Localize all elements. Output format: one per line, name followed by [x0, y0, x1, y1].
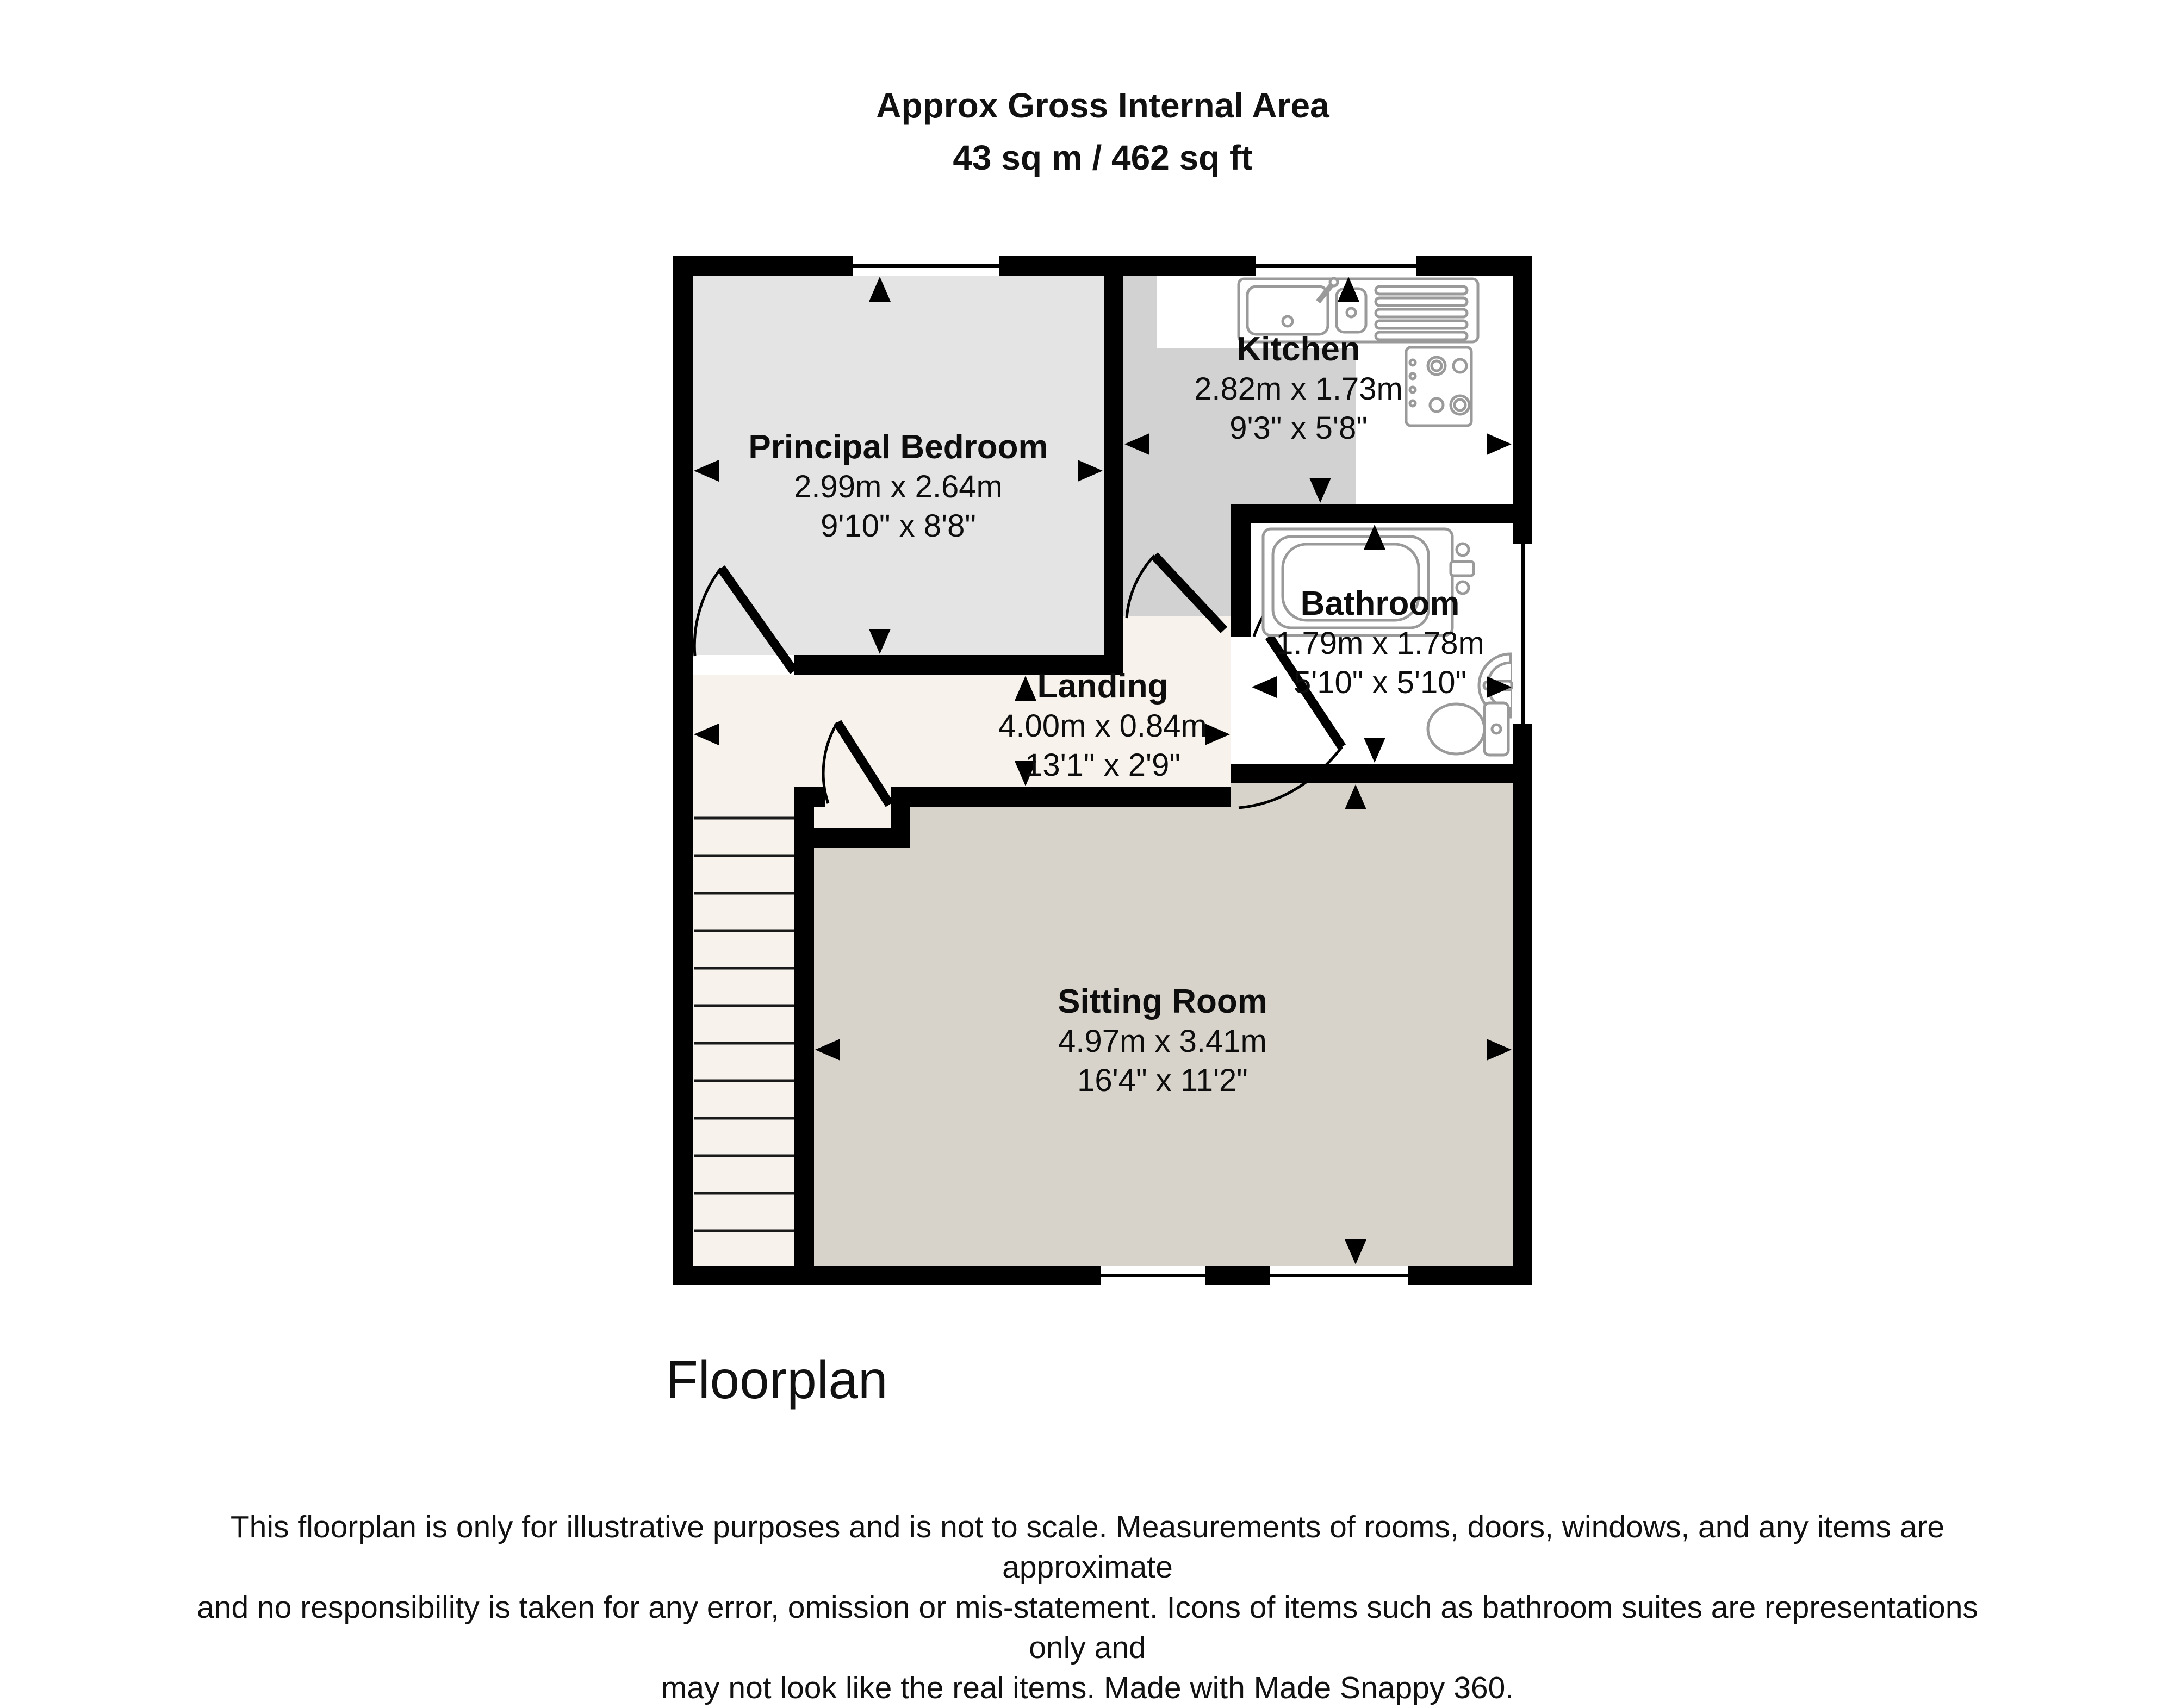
window-symbol: [1513, 544, 1532, 724]
window-symbol: [1256, 256, 1416, 276]
disclaimer-line-1: This floorplan is only for illustrative …: [190, 1507, 1985, 1587]
bedroom-label: Principal Bedroom: [748, 428, 1048, 466]
wall-landing-bottom-b: [891, 787, 1231, 807]
sitting-room-metric: 4.97m x 3.41m: [1058, 1024, 1267, 1059]
bathroom-metric: 1.79m x 1.78m: [1276, 626, 1484, 661]
disclaimer-line-3: may not look like the real items. Made w…: [190, 1668, 1985, 1708]
floorplan: Principal Bedroom 2.99m x 2.64m 9'10" x …: [673, 256, 1532, 1285]
wall-stairs-right: [794, 787, 814, 1266]
window-symbol: [1101, 1266, 1205, 1285]
wall-bedroom-right: [1104, 276, 1123, 675]
plan-caption: Floorplan: [666, 1349, 888, 1411]
disclaimer-line-2: and no responsibility is taken for any e…: [190, 1587, 1985, 1668]
sitting-room-floor-3: [1231, 783, 1513, 848]
bathroom-imperial: 5'10" x 5'10": [1294, 665, 1466, 700]
window-symbol: [1270, 1266, 1408, 1285]
wall-kitchen-bottom: [1231, 504, 1513, 523]
landing-label: Landing: [1037, 668, 1168, 705]
kitchen-imperial: 9'3" x 5'8": [1229, 410, 1368, 446]
bedroom-metric: 2.99m x 2.64m: [794, 469, 1003, 504]
disclaimer: This floorplan is only for illustrative …: [190, 1507, 1985, 1708]
closet-floor: [814, 807, 891, 828]
floorplan-svg: Principal Bedroom 2.99m x 2.64m 9'10" x …: [673, 256, 1532, 1285]
sitting-room-label: Sitting Room: [1058, 983, 1267, 1020]
title-line-2: 43 sq m / 462 sq ft: [673, 132, 1532, 184]
sitting-room-imperial: 16'4" x 11'2": [1077, 1063, 1248, 1098]
toilet-icon: [1428, 703, 1508, 755]
bedroom-imperial: 9'10" x 8'8": [821, 508, 976, 544]
bathroom-label: Bathroom: [1301, 585, 1460, 622]
wall-outer-right: [1513, 256, 1532, 1285]
kitchen-metric: 2.82m x 1.73m: [1194, 371, 1403, 407]
wall-bathroom-bottom: [1231, 764, 1513, 783]
landing-imperial: 13'1" x 2'9": [1025, 747, 1180, 783]
wall-bathroom-left: [1231, 504, 1251, 637]
title-line-1: Approx Gross Internal Area: [673, 79, 1532, 132]
hob-icon: [1406, 347, 1471, 426]
page-title: Approx Gross Internal Area 43 sq m / 462…: [673, 79, 1532, 184]
landing-metric: 4.00m x 0.84m: [998, 708, 1207, 744]
sitting-room-floor-2: [910, 807, 1231, 848]
kitchen-label: Kitchen: [1236, 331, 1360, 368]
window-symbol: [853, 256, 999, 276]
kitchen-floor-entry: [1123, 504, 1231, 616]
wall-closet-bottom: [814, 828, 910, 848]
wall-outer-left: [673, 256, 693, 1285]
